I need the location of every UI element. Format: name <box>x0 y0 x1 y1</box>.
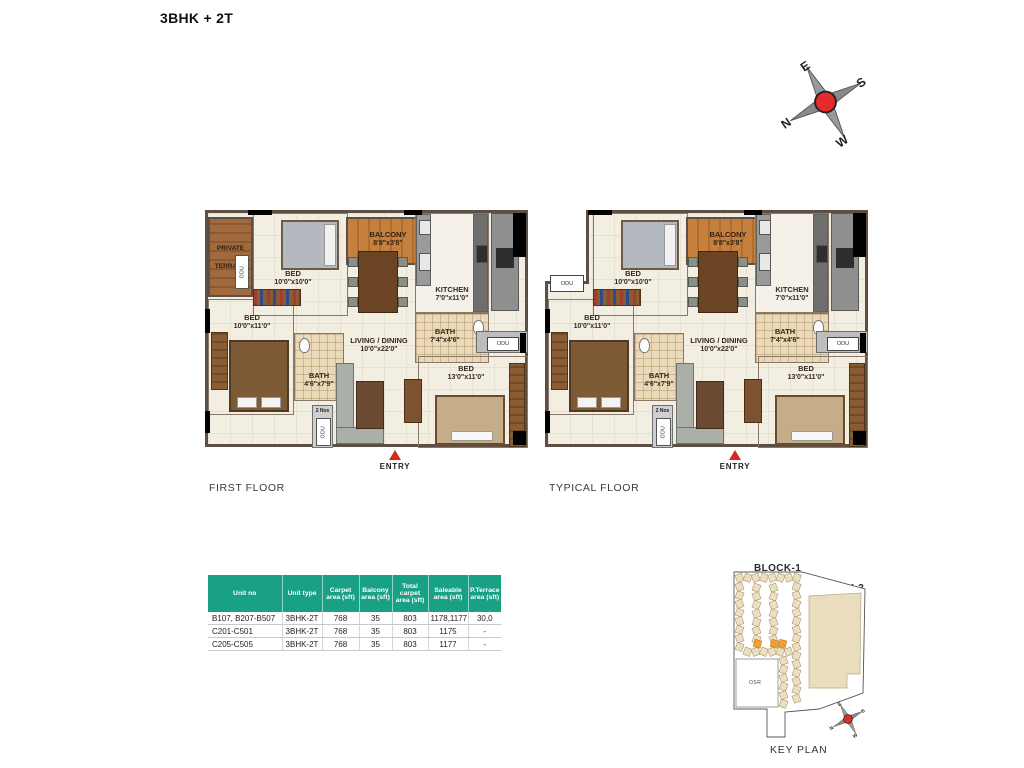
compass-w-label: W <box>833 132 851 150</box>
dining-table <box>698 251 738 313</box>
entry-label: ENTRY <box>369 462 421 471</box>
svg-text:W: W <box>852 732 860 740</box>
compass-s-label: S <box>854 74 869 90</box>
odu-unit: ODU <box>235 255 249 289</box>
table-row: C201-C501 3BHK-2T 768 35 803 1175 - <box>208 625 501 638</box>
room-dims: 13'0"x11'0" <box>419 374 513 382</box>
pillow <box>237 397 257 408</box>
sink-icon <box>759 253 771 271</box>
room-dims: 10'0"x11'0" <box>213 323 291 331</box>
room-dims: 7'4"x4'6" <box>756 337 814 345</box>
compass-rose-icon: E S N W <box>778 52 873 152</box>
two-nos-label: 2 Nos <box>653 408 672 414</box>
room-dims: 10'0"x11'0" <box>553 323 631 331</box>
chair-icon <box>688 277 698 287</box>
sink-icon <box>419 253 431 271</box>
stove-icon <box>476 245 488 263</box>
wardrobe <box>551 332 568 390</box>
cell-total-carpet: 803 <box>392 625 428 638</box>
pillow <box>261 397 281 408</box>
typical-floor-plan: ODU BED 10'0"x10'0" BALCONY 8'8"x3'8" <box>545 210 868 510</box>
chair-icon <box>398 277 408 287</box>
chair-icon <box>348 277 358 287</box>
chair-icon <box>738 257 748 267</box>
toilet-icon <box>639 338 650 353</box>
room-label: BED <box>759 365 853 374</box>
bed-furniture <box>775 395 845 445</box>
cell-total-carpet: 803 <box>392 612 428 625</box>
room-label: KITCHEN <box>756 286 828 295</box>
room-label: LIVING / DINING <box>336 337 422 346</box>
room-label: BED <box>553 314 631 323</box>
unit-area-table: Unit no Unit type Carpet area (sft) Balc… <box>208 575 501 651</box>
appliance-icon <box>496 248 514 268</box>
room-label: BED <box>594 270 672 279</box>
room-label: BATH <box>635 372 683 381</box>
room-label: BALCONY <box>688 231 768 240</box>
dresser <box>253 289 301 306</box>
bed-furniture <box>569 340 629 412</box>
cell-carpet-area: 768 <box>322 625 359 638</box>
cell-unit-no: C201-C501 <box>208 625 282 638</box>
sofa <box>676 427 724 444</box>
cell-unit-no: C205-C505 <box>208 638 282 651</box>
cell-carpet-area: 768 <box>322 612 359 625</box>
cell-balcony-area: 35 <box>359 612 392 625</box>
floor-plan: ODU BED 10'0"x10'0" BALCONY 8'8"x3'8" <box>545 210 868 447</box>
cell-saleable-area: 1177 <box>428 638 468 651</box>
block2-area <box>809 593 861 688</box>
kitchen-counter <box>416 214 431 286</box>
room-dims: 13'0"x11'0" <box>759 374 853 382</box>
bedroom-left: BED 10'0"x11'0" <box>548 299 634 415</box>
entry-arrow-icon <box>389 450 401 460</box>
bedroom-right: BED 13'0"x11'0" <box>758 356 868 448</box>
svg-text:S: S <box>860 708 867 715</box>
wardrobe <box>211 332 228 390</box>
cell-unit-type: 3BHK-2T <box>282 625 322 638</box>
wall-segment <box>545 411 550 433</box>
bedroom-left: BED 10'0"x11'0" <box>208 299 294 415</box>
odu-unit: ODU <box>487 337 519 351</box>
room-dims: 4'6"x7'9" <box>635 381 683 389</box>
room-dims: 10'0"x10'0" <box>594 279 672 287</box>
room-label: BED <box>254 270 332 279</box>
room-dims: 7'0"x11'0" <box>756 295 828 303</box>
cell-balcony-area: 35 <box>359 638 392 651</box>
bed-furniture <box>281 220 339 270</box>
floor-plan: PRIVATE TERRACE ODU BED 10'0"x10'0" BALC… <box>205 210 528 447</box>
page-title: 3BHK + 2T <box>160 10 233 26</box>
chair-icon <box>688 297 698 307</box>
wall-segment <box>205 411 210 433</box>
wall-segment <box>588 210 612 215</box>
room-dims: 7'0"x11'0" <box>416 295 488 303</box>
bedroom-right: BED 13'0"x11'0" <box>418 356 528 448</box>
odu-2nos-box: 2 Nos ODU <box>652 405 673 448</box>
pillow <box>791 431 833 441</box>
tv-console <box>404 379 422 423</box>
floor-caption: TYPICAL FLOOR <box>549 482 639 494</box>
room-dims: 10'0"x22'0" <box>676 346 762 354</box>
cell-unit-type: 3BHK-2T <box>282 638 322 651</box>
chair-icon <box>738 297 748 307</box>
pillow <box>601 397 621 408</box>
appliance-icon <box>836 248 854 268</box>
dresser <box>593 289 641 306</box>
odu-unit: ODU <box>656 418 671 446</box>
table-row: B107, B207-B507 3BHK-2T 768 35 803 1178,… <box>208 612 501 625</box>
bed-furniture <box>229 340 289 412</box>
cell-balcony-area: 35 <box>359 625 392 638</box>
chair-icon <box>398 257 408 267</box>
pillow <box>451 431 493 441</box>
chair-icon <box>348 257 358 267</box>
kitchen-room: KITCHEN 7'0"x11'0" <box>755 213 829 313</box>
exterior-cutout <box>545 210 589 284</box>
room-label: KITCHEN <box>416 286 488 295</box>
cell-unit-no: B107, B207-B507 <box>208 612 282 625</box>
room-label: BATH <box>416 328 474 337</box>
room-dims: 10'0"x22'0" <box>336 346 422 354</box>
wall-segment <box>248 210 272 215</box>
wall-segment <box>545 309 550 333</box>
room-label: BATH <box>756 328 814 337</box>
wall-segment <box>853 431 866 445</box>
room-dims: 7'4"x4'6" <box>416 337 474 345</box>
wall-segment <box>744 210 762 215</box>
cell-terrace-area: - <box>468 638 501 651</box>
chair-icon <box>398 297 408 307</box>
cell-carpet-area: 768 <box>322 638 359 651</box>
kitchen-room: KITCHEN 7'0"x11'0" <box>415 213 489 313</box>
column-header: Unit type <box>282 575 322 612</box>
room-label: BED <box>419 365 513 374</box>
column-header: Carpet area (sft) <box>322 575 359 612</box>
column-header: P.Terrace area (sft) <box>468 575 501 612</box>
bed-furniture <box>435 395 505 445</box>
two-nos-label: 2 Nos <box>313 408 332 414</box>
first-floor-plan: PRIVATE TERRACE ODU BED 10'0"x10'0" BALC… <box>205 210 528 510</box>
wall-segment <box>860 333 866 353</box>
chair-icon <box>738 277 748 287</box>
rug <box>696 381 724 429</box>
room-dims: 4'6"x7'9" <box>295 381 343 389</box>
room-label: BATH <box>295 372 343 381</box>
odu-2nos-box: 2 Nos ODU <box>312 405 333 448</box>
bed-furniture <box>621 220 679 270</box>
tv-console <box>744 379 762 423</box>
chair-icon <box>348 297 358 307</box>
kitchen-counter <box>756 214 771 286</box>
room-dims: 10'0"x10'0" <box>254 279 332 287</box>
pillow <box>577 397 597 408</box>
wall-segment <box>853 213 866 257</box>
odu-unit: ODU <box>316 418 331 446</box>
compass-n-label: N <box>778 115 793 132</box>
room-label: BED <box>213 314 291 323</box>
wall-segment <box>513 213 526 257</box>
pillow <box>324 224 336 266</box>
stove-icon <box>816 245 828 263</box>
floor-caption: FIRST FLOOR <box>209 482 285 494</box>
wall-segment <box>205 309 210 333</box>
sofa <box>336 427 384 444</box>
pillow <box>664 224 676 266</box>
key-plan-map: OSR E S N W <box>722 556 902 761</box>
wall-segment <box>404 210 422 215</box>
entry-label: ENTRY <box>709 462 761 471</box>
table-header-row: Unit no Unit type Carpet area (sft) Balc… <box>208 575 501 612</box>
cell-terrace-area: - <box>468 625 501 638</box>
cell-terrace-area: 30,0 <box>468 612 501 625</box>
table-row: C205-C505 3BHK-2T 768 35 803 1177 - <box>208 638 501 651</box>
cell-total-carpet: 803 <box>392 638 428 651</box>
odu-unit: ODU <box>550 275 584 292</box>
toilet-icon <box>299 338 310 353</box>
cell-unit-type: 3BHK-2T <box>282 612 322 625</box>
wall-segment <box>513 431 526 445</box>
private-terrace-room: PRIVATE TERRACE ODU <box>208 217 253 297</box>
column-header: Unit no <box>208 575 282 612</box>
column-header: Balcony area (sft) <box>359 575 392 612</box>
room-dims: 8'8"x3'8" <box>688 240 768 248</box>
cell-saleable-area: 1178,1177 <box>428 612 468 625</box>
rug <box>356 381 384 429</box>
room-label: BALCONY <box>348 231 428 240</box>
odu-unit: ODU <box>827 337 859 351</box>
chair-icon <box>688 257 698 267</box>
cell-saleable-area: 1175 <box>428 625 468 638</box>
key-plan-caption: KEY PLAN <box>770 744 828 756</box>
wall-segment <box>520 333 526 353</box>
osr-label: OSR <box>749 680 761 686</box>
entry-arrow-icon <box>729 450 741 460</box>
column-header: Total carpet area (sft) <box>392 575 428 612</box>
dining-table <box>358 251 398 313</box>
column-header: Saleable area (sft) <box>428 575 468 612</box>
room-label: LIVING / DINING <box>676 337 762 346</box>
room-dims: 8'8"x3'8" <box>348 240 428 248</box>
